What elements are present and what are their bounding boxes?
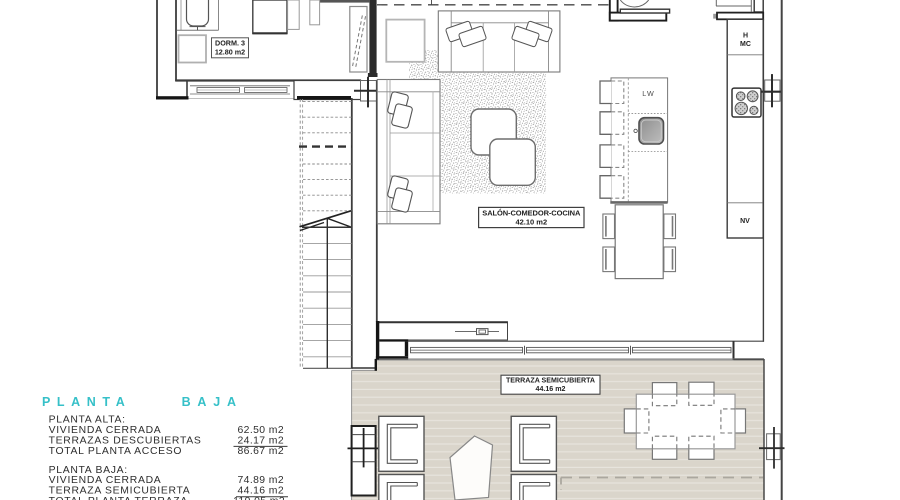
- svg-text:42.10 m2: 42.10 m2: [515, 218, 547, 227]
- svg-text:LW: LW: [642, 89, 655, 98]
- svg-text:86.67 m2: 86.67 m2: [237, 446, 284, 457]
- svg-text:MC: MC: [740, 41, 751, 48]
- svg-text:DORM. 3: DORM. 3: [215, 39, 245, 48]
- svg-text:PLANTA ALTA:: PLANTA ALTA:: [49, 415, 126, 426]
- svg-text:44.16 m2: 44.16 m2: [536, 385, 566, 393]
- svg-text:NV: NV: [740, 218, 750, 225]
- svg-text:TOTAL PLANTA ACCESO: TOTAL PLANTA ACCESO: [49, 446, 183, 457]
- svg-text:24.17 m2: 24.17 m2: [237, 435, 284, 446]
- svg-text:TERRAZA SEMICUBIERTA: TERRAZA SEMICUBIERTA: [506, 376, 595, 384]
- svg-text:H: H: [743, 33, 748, 40]
- svg-text:VIVIENDA CERRADA: VIVIENDA CERRADA: [49, 425, 162, 436]
- svg-text:TERRAZA SEMICUBIERTA: TERRAZA SEMICUBIERTA: [49, 486, 191, 497]
- svg-text:44.16 m2: 44.16 m2: [237, 486, 284, 497]
- svg-text:SALÓN-COMEDOR-COCINA: SALÓN-COMEDOR-COCINA: [482, 208, 581, 217]
- svg-text:PLANTA BAJA:: PLANTA BAJA:: [49, 465, 128, 476]
- svg-text:VIVIENDA CERRADA: VIVIENDA CERRADA: [49, 475, 162, 486]
- svg-text:74.89 m2: 74.89 m2: [237, 475, 284, 486]
- svg-text:12.80 m2: 12.80 m2: [215, 48, 245, 57]
- svg-text:PLANTA: PLANTA: [42, 395, 131, 409]
- svg-text:TERRAZAS DESCUBIERTAS: TERRAZAS DESCUBIERTAS: [49, 435, 202, 446]
- svg-text:TOTAL PLANTA TERRAZA: TOTAL PLANTA TERRAZA: [49, 496, 188, 500]
- svg-text:BAJA: BAJA: [182, 395, 243, 409]
- svg-text:62.50 m2: 62.50 m2: [237, 425, 284, 436]
